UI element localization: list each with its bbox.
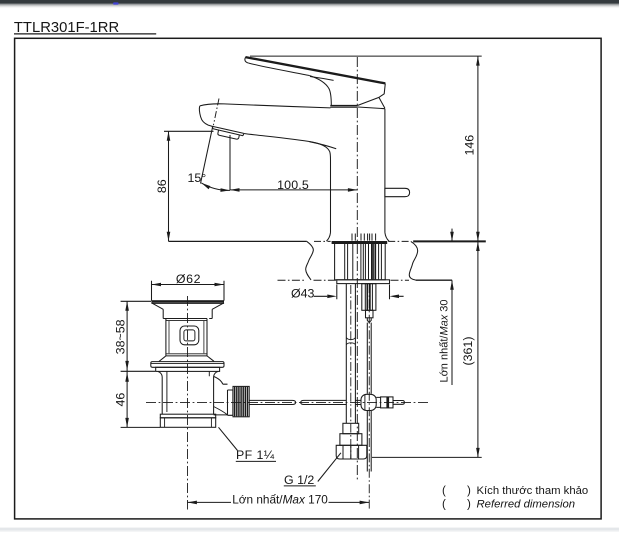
svg-text:86: 86 bbox=[155, 179, 169, 193]
svg-text:): ) bbox=[467, 484, 471, 497]
svg-text:38~58: 38~58 bbox=[114, 319, 128, 354]
svg-text:(361): (361) bbox=[461, 337, 475, 366]
svg-text:Ø43: Ø43 bbox=[291, 287, 315, 301]
svg-text:100.5: 100.5 bbox=[277, 178, 309, 192]
svg-text:(: ( bbox=[442, 484, 446, 497]
svg-text:Ø62: Ø62 bbox=[176, 272, 201, 286]
svg-text:): ) bbox=[467, 498, 471, 511]
svg-text:146: 146 bbox=[463, 135, 477, 156]
svg-text:15°: 15° bbox=[188, 171, 207, 185]
svg-text:G 1/2: G 1/2 bbox=[284, 473, 314, 487]
svg-text:Kích thước tham khảo: Kích thước tham khảo bbox=[477, 485, 589, 497]
svg-text:Lớn nhất/Max 30: Lớn nhất/Max 30 bbox=[438, 299, 450, 382]
svg-text:Lớn nhất/Max 170: Lớn nhất/Max 170 bbox=[232, 493, 328, 507]
svg-text:Referred dimension: Referred dimension bbox=[477, 499, 576, 511]
svg-text:(: ( bbox=[442, 498, 446, 511]
svg-text:PF 1¼: PF 1¼ bbox=[236, 448, 275, 462]
svg-text:46: 46 bbox=[114, 393, 128, 407]
